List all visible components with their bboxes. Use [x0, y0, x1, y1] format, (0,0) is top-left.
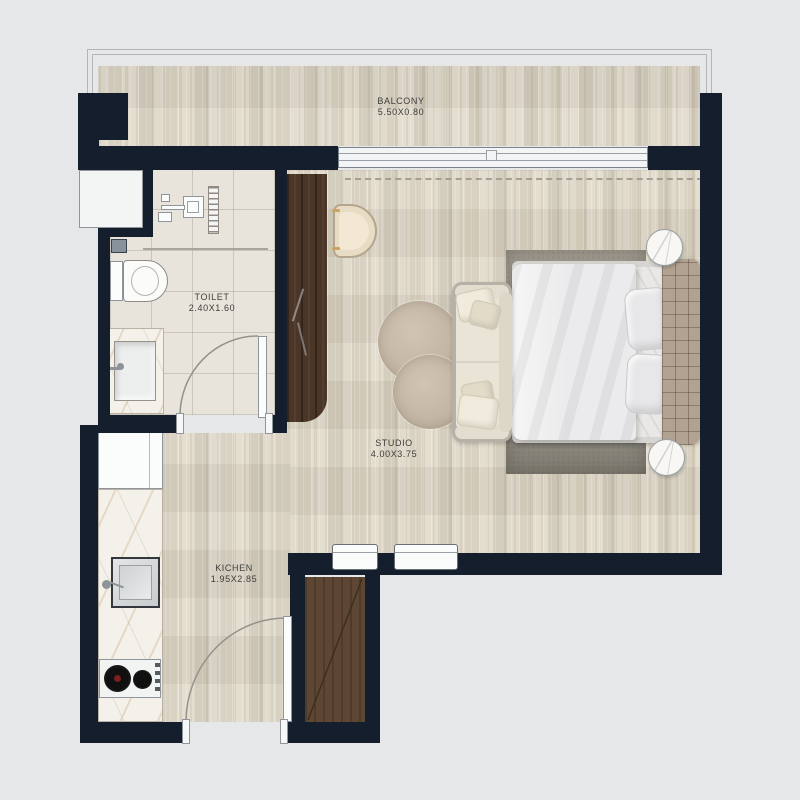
floor-plan: BALCONY 5.50X0.80 TOILET 2.40X1.60 STUDI… — [0, 0, 800, 800]
toilet-label: TOILET 2.40X1.60 — [152, 292, 272, 314]
sliding-door-latch — [486, 150, 497, 161]
towel-ladder — [208, 186, 219, 234]
wardrobe — [287, 174, 327, 422]
room-dims: 2.40X1.60 — [152, 303, 272, 314]
wall — [80, 722, 184, 743]
door-jamb — [280, 719, 288, 744]
toilet-door-leaf — [258, 336, 267, 418]
entry-door-arc — [186, 618, 288, 722]
ac-unit — [394, 544, 458, 570]
room-name: STUDIO — [334, 438, 454, 449]
vanity-faucet-knob — [117, 363, 124, 370]
room-name: TOILET — [152, 292, 272, 303]
room-dims: 1.95X2.85 — [174, 574, 294, 585]
wc-cistern — [111, 239, 127, 253]
wall — [275, 170, 287, 433]
kitchen-sink-basin — [119, 565, 152, 600]
balcony-label: BALCONY 5.50X0.80 — [341, 96, 461, 118]
wall — [98, 237, 110, 433]
room-dims: 4.00X3.75 — [334, 449, 454, 460]
wall — [78, 140, 99, 170]
wall — [143, 170, 153, 237]
toilet-door-arc — [180, 336, 260, 416]
wall — [700, 93, 722, 575]
ac-unit — [332, 544, 378, 570]
armchair-trim — [332, 209, 340, 212]
studio-label: STUDIO 4.00X3.75 — [334, 438, 454, 460]
room-dims: 5.50X0.80 — [341, 107, 461, 118]
door-jamb — [176, 413, 184, 434]
shower-valve — [161, 194, 170, 202]
door-jamb — [182, 719, 190, 744]
shower-head-inner — [187, 201, 199, 213]
door-jamb — [265, 413, 273, 434]
sliding-balcony-door — [338, 147, 648, 168]
bedside-table-top — [646, 229, 683, 266]
shower-mixer — [158, 212, 172, 222]
wall — [365, 575, 380, 743]
room-name: BALCONY — [341, 96, 461, 107]
wall — [110, 415, 183, 433]
duct-shaft-diagonal — [305, 577, 365, 722]
wall — [80, 425, 98, 743]
armchair-trim — [332, 247, 340, 250]
wall — [78, 93, 128, 140]
shower-glass — [143, 248, 268, 250]
room-name: KICHEN — [174, 563, 294, 574]
wall — [98, 146, 338, 170]
bedside-table-bottom — [648, 439, 685, 476]
overhang-dashed-line — [345, 178, 703, 180]
tufted-headboard — [662, 259, 700, 445]
duct-shaft — [305, 577, 365, 722]
vanity-basin — [114, 341, 156, 401]
shower-arm — [161, 205, 185, 210]
wall — [98, 228, 153, 237]
sofa-pillow — [456, 393, 500, 430]
cooktop-knobs — [155, 663, 160, 694]
kitchen-cabinet — [98, 431, 163, 489]
kitchen-label: KICHEN 1.95X2.85 — [174, 563, 294, 585]
wc-tank — [110, 261, 123, 301]
burner-small — [133, 670, 152, 689]
entry-door-leaf — [283, 616, 292, 722]
wall — [290, 575, 305, 722]
burner-indicator — [114, 675, 121, 682]
service-duct — [79, 170, 143, 228]
bed-duvet — [512, 264, 636, 440]
